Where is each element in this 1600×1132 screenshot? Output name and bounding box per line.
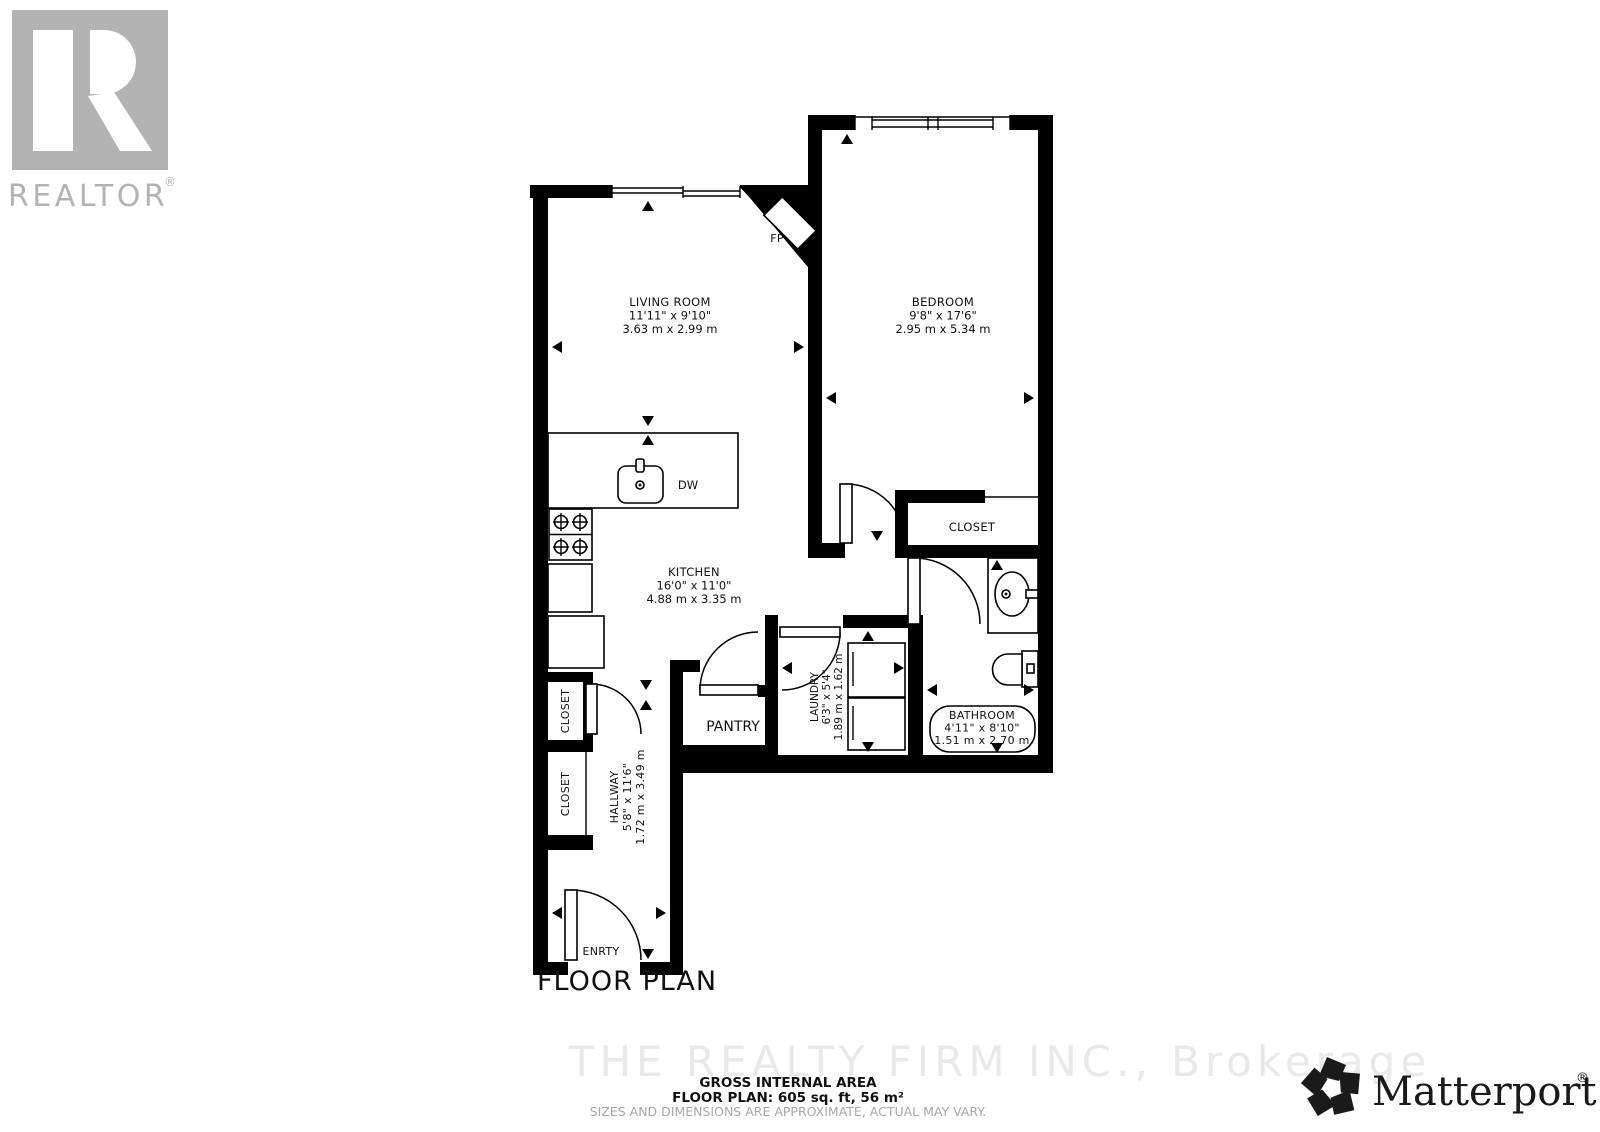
bedroom-closet-front	[985, 490, 1038, 503]
hallway-metric: 1.72 m x 3.49 m	[634, 749, 647, 844]
room-label-living-room: LIVING ROOM 11'11" x 9'10" 3.63 m x 2.99…	[622, 295, 717, 336]
bathroom-door	[908, 558, 980, 624]
dryer	[848, 698, 905, 750]
dishwasher-label: DW	[678, 478, 698, 492]
fireplace-label: FP	[770, 232, 784, 245]
floor-plan-page: REALTOR ® THE REALTY FIRM INC., Brokerag…	[0, 0, 1600, 1132]
kitchen-counter	[548, 564, 592, 612]
hall-closet-door	[586, 684, 641, 734]
bedroom-closet-label: CLOSET	[949, 520, 996, 534]
room-label-bedroom: BEDROOM 9'8" x 17'6" 2.95 m x 5.34 m	[895, 295, 990, 336]
hallway-imperial: 5'8" x 11'6"	[621, 763, 634, 831]
laundry-imperial: 6'3" x 5'4"	[821, 669, 833, 724]
matterport-registered-mark: ®	[1576, 1071, 1589, 1086]
bedroom-imperial: 9'8" x 17'6"	[909, 309, 977, 323]
hallway-name: HALLWAY	[608, 771, 621, 824]
room-label-laundry: LAUNDRY 6'3" x 5'4" 1.89 m x 1.62 m	[809, 654, 845, 741]
dimensions-disclaimer: SIZES AND DIMENSIONS ARE APPROXIMATE, AC…	[590, 1104, 987, 1119]
brokerage-watermark: THE REALTY FIRM INC., Brokerage	[568, 1037, 1431, 1086]
matterport-logo: Matterport ®	[1299, 1057, 1597, 1121]
closet-upper-label: CLOSET	[559, 689, 572, 734]
kitchen-imperial: 16'0" x 11'0"	[657, 579, 732, 593]
bathroom-name: BATHROOM	[949, 709, 1015, 722]
room-label-kitchen: KITCHEN 16'0" x 11'0" 4.88 m x 3.35 m	[646, 565, 741, 606]
fridge	[548, 616, 604, 668]
pantry-label: PANTRY	[706, 719, 760, 735]
bedroom-metric: 2.95 m x 5.34 m	[895, 322, 990, 336]
matterport-wordmark: Matterport	[1372, 1069, 1597, 1115]
kitchen-metric: 4.88 m x 3.35 m	[646, 592, 741, 606]
bathroom-imperial: 4'11" x 8'10"	[944, 722, 1020, 735]
page-title: FLOOR PLAN	[537, 966, 717, 997]
room-labels: LIVING ROOM 11'11" x 9'10" 3.63 m x 2.99…	[559, 232, 1030, 958]
closet-lower-label: CLOSET	[559, 772, 572, 817]
laundry-name: LAUNDRY	[809, 671, 821, 722]
fixtures: DW	[548, 197, 1038, 752]
toilet	[993, 651, 1039, 687]
entry-label: ENRTY	[583, 945, 620, 958]
living-room-imperial: 11'11" x 9'10"	[629, 309, 711, 323]
living-room-window	[612, 185, 740, 198]
floorplan-svg: REALTOR ® THE REALTY FIRM INC., Brokerag…	[0, 0, 1600, 1132]
living-room-metric: 3.63 m x 2.99 m	[622, 322, 717, 336]
stove	[549, 509, 592, 560]
kitchen-faucet	[636, 459, 644, 472]
bedroom-window	[855, 115, 1010, 130]
realtor-wordmark: REALTOR	[8, 179, 168, 214]
laundry-metric: 1.89 m x 1.62 m	[833, 654, 845, 741]
bedroom-name: BEDROOM	[912, 295, 974, 309]
living-room-name: LIVING ROOM	[629, 295, 711, 309]
realtor-logo: REALTOR ®	[8, 10, 176, 214]
realtor-registered-mark: ®	[164, 175, 176, 189]
vanity-sink	[995, 572, 1029, 616]
washer-dryer-stack	[848, 643, 905, 750]
room-label-hallway: HALLWAY 5'8" x 11'6" 1.72 m x 3.49 m	[608, 749, 647, 844]
kitchen-name: KITCHEN	[668, 565, 720, 579]
gross-internal-area-heading: GROSS INTERNAL AREA	[699, 1075, 877, 1091]
pantry-door	[700, 632, 758, 695]
bathroom-metric: 1.51 m x 2.70 m	[934, 734, 1029, 747]
